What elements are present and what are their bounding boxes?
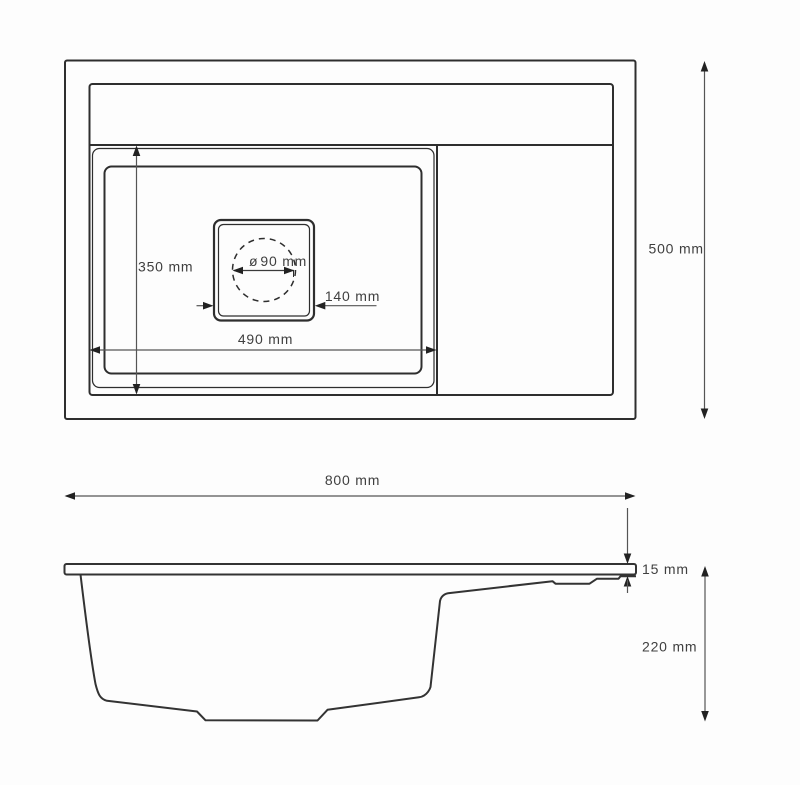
svg-text:800 mm: 800 mm <box>325 472 380 488</box>
svg-text:490 mm: 490 mm <box>238 331 293 347</box>
svg-text:140 mm: 140 mm <box>325 288 380 304</box>
svg-text:500 mm: 500 mm <box>649 241 704 257</box>
svg-text:ø90 mm: ø90 mm <box>249 253 307 269</box>
svg-text:220 mm: 220 mm <box>642 639 697 655</box>
svg-text:15 mm: 15 mm <box>642 561 689 577</box>
svg-text:350 mm: 350 mm <box>138 259 193 275</box>
